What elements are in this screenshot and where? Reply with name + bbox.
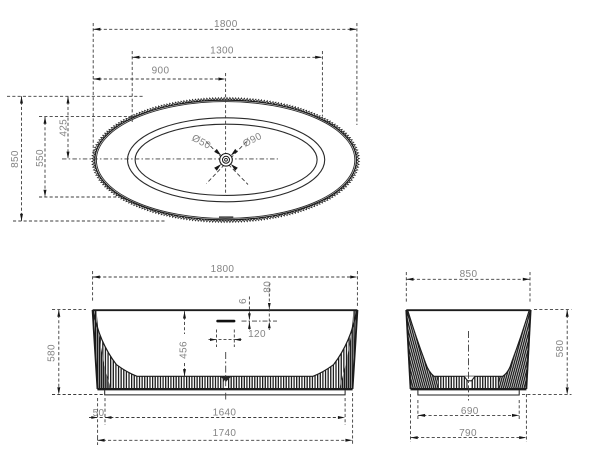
svg-text:120: 120	[248, 329, 266, 340]
svg-text:1800: 1800	[214, 19, 238, 30]
svg-text:50: 50	[93, 408, 105, 419]
svg-text:850: 850	[460, 269, 478, 280]
svg-text:1300: 1300	[210, 46, 234, 57]
svg-text:580: 580	[47, 344, 58, 362]
svg-text:425: 425	[59, 119, 70, 137]
svg-text:900: 900	[152, 66, 170, 77]
svg-text:580: 580	[555, 340, 566, 358]
svg-text:1740: 1740	[213, 428, 237, 439]
svg-text:80: 80	[263, 281, 274, 293]
svg-text:850: 850	[10, 150, 21, 168]
svg-text:6: 6	[238, 298, 249, 304]
svg-text:550: 550	[35, 149, 46, 167]
svg-text:456: 456	[178, 341, 189, 359]
svg-text:690: 690	[461, 406, 479, 417]
svg-text:790: 790	[459, 428, 477, 439]
svg-text:1800: 1800	[211, 264, 235, 275]
svg-text:1640: 1640	[213, 407, 237, 418]
